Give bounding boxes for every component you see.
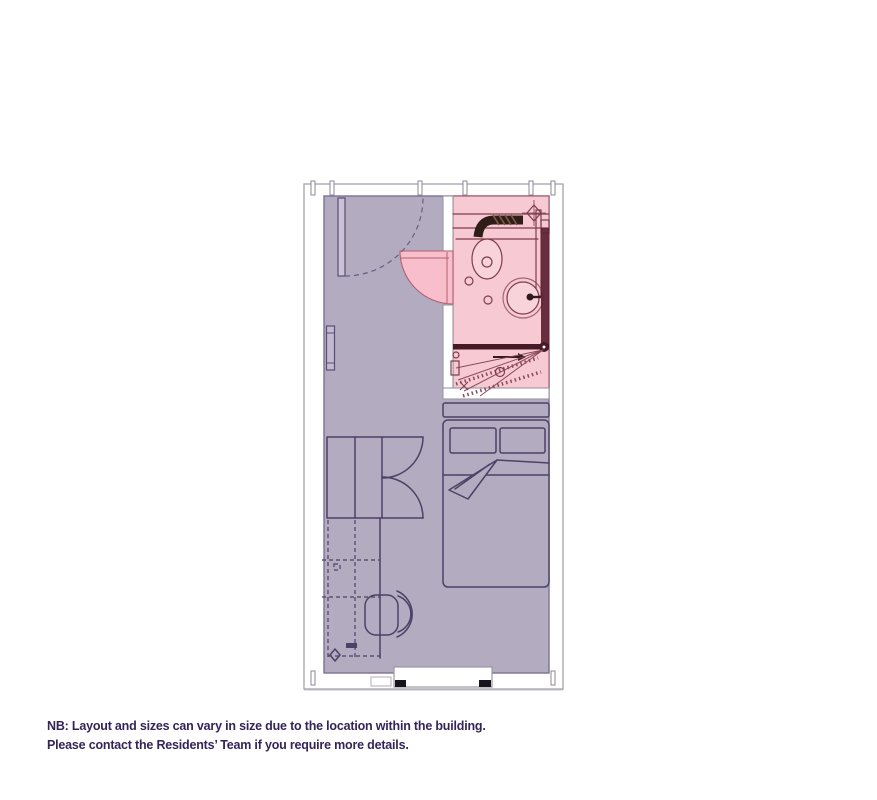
- bathroom-wall-upper: [443, 196, 453, 251]
- window-frame: [394, 667, 492, 687]
- wash-basin: [503, 278, 543, 318]
- window-marker-right: [479, 680, 491, 687]
- headboard: [443, 403, 549, 417]
- note-line-1: NB: Layout and sizes can vary in size du…: [47, 717, 517, 736]
- bed: [443, 403, 549, 587]
- duct-strip: [541, 228, 549, 346]
- toilet: [472, 239, 502, 279]
- note-line-2: Please contact the Residents’ Team if yo…: [47, 736, 517, 755]
- socket-icon: [346, 643, 357, 648]
- window-sill-notch: [371, 677, 391, 686]
- note: NB: Layout and sizes can vary in size du…: [47, 717, 517, 754]
- radiator: [327, 326, 335, 370]
- entry-door-leaf: [338, 198, 345, 276]
- shower-screen-track: [453, 344, 549, 350]
- floor-plan-canvas: [0, 0, 877, 800]
- bathroom-wall-bottom: [443, 388, 549, 399]
- wall-ticks-top: [311, 181, 555, 195]
- bathroom-wall-lower: [443, 305, 453, 389]
- window-marker-left: [395, 680, 406, 687]
